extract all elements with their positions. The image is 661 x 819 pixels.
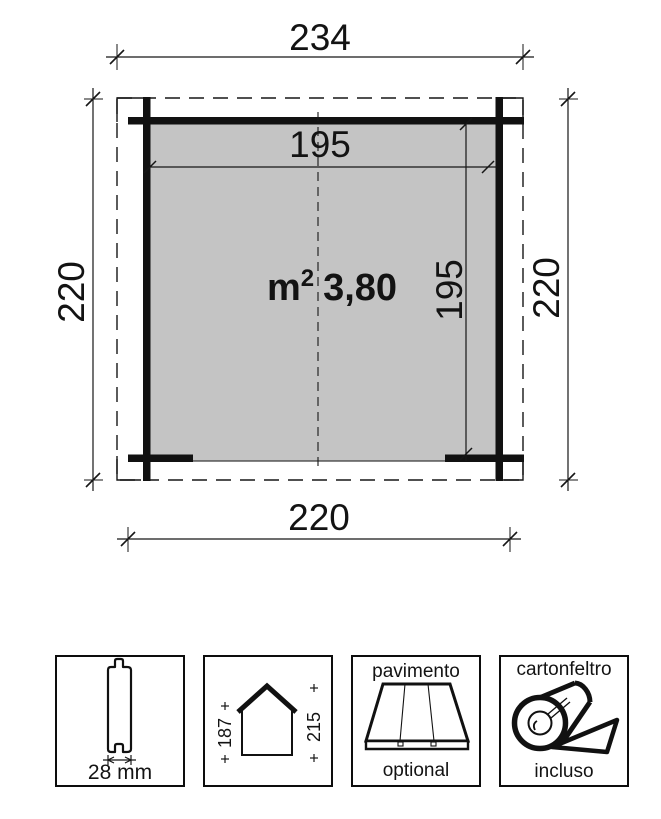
house-section-icon: 187 215 xyxy=(205,657,331,785)
floor-plan-drawing: 234 195 195 220 xyxy=(0,0,661,620)
floor-title: pavimento xyxy=(372,661,460,682)
plank-profile-icon: 28 mm xyxy=(57,657,183,785)
spec-box-house: 187 215 xyxy=(203,655,333,787)
dim-depth-right: 220 xyxy=(526,88,578,491)
dim-depth-left-label: 220 xyxy=(51,261,92,323)
svg-text:m23,80: m23,80 xyxy=(267,265,397,309)
felt-title: cartonfeltro xyxy=(516,659,611,680)
wall-height-label: 187 xyxy=(215,718,235,748)
floor-note: optional xyxy=(383,760,450,781)
left-wall xyxy=(143,97,151,481)
right-wall xyxy=(496,97,504,481)
floor-icon: pavimento optional xyxy=(353,657,479,785)
dim-depth-left: 220 xyxy=(51,88,103,491)
spec-box-felt: cartonfeltro incluso xyxy=(499,655,629,787)
front-wall-right-stub xyxy=(445,455,524,463)
area-unit: m xyxy=(267,267,301,309)
area-value: 3,80 xyxy=(323,267,397,309)
dim-roof-width-label: 234 xyxy=(289,17,351,58)
area-label: m23,80 xyxy=(267,265,397,309)
dim-front-width: 220 xyxy=(117,497,521,552)
spec-box-floor: pavimento optional xyxy=(351,655,481,787)
felt-roll-icon: cartonfeltro incluso xyxy=(501,657,627,785)
shed-technical-drawing-page: 234 195 195 220 xyxy=(0,0,661,819)
front-wall-left-stub xyxy=(128,455,193,463)
dim-inner-width-label: 195 xyxy=(289,124,351,165)
dim-front-width-label: 220 xyxy=(288,497,350,538)
felt-note: incluso xyxy=(534,761,593,782)
plank-thickness-label: 28 mm xyxy=(88,761,152,784)
area-unit-exponent: 2 xyxy=(301,265,314,292)
dim-inner-depth-label: 195 xyxy=(429,259,470,321)
dim-depth-right-label: 220 xyxy=(526,257,567,319)
dim-roof-width: 234 xyxy=(106,17,534,70)
spec-box-plank: 28 mm xyxy=(55,655,185,787)
ridge-height-label: 215 xyxy=(304,712,324,742)
